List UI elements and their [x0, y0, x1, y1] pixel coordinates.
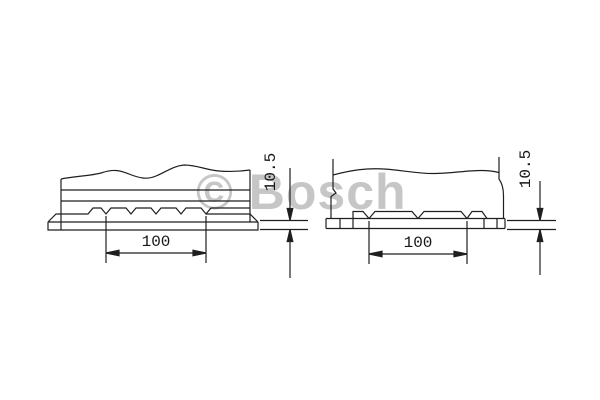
- technical-drawing-page: © Bosch 100 100 10.5 10.5: [0, 0, 600, 400]
- left-width-arrow-left: [106, 250, 119, 256]
- left-height-arrow-up: [287, 230, 293, 242]
- right-body-top-wave: [333, 169, 499, 175]
- right-width-arrow-right: [454, 251, 467, 257]
- left-body-top-wave: [61, 165, 250, 179]
- right-tooth-1: [353, 212, 369, 229]
- right-body-left-edge: [331, 159, 336, 219]
- left-foot-outline: [48, 222, 258, 230]
- right-view-height-dimension-label: 10.5: [518, 146, 534, 192]
- right-tooth-2: [369, 212, 418, 219]
- left-ledge-teeth: [48, 208, 250, 222]
- right-view-width-dimension-label: 100: [388, 235, 448, 251]
- right-height-arrow-down: [537, 209, 543, 221]
- left-view-width-dimension-label: 100: [126, 234, 186, 250]
- right-body-right-edge: [499, 157, 504, 219]
- right-width-arrow-left: [369, 251, 382, 257]
- right-tooth-4: [467, 212, 487, 219]
- left-width-arrow-right: [193, 250, 206, 256]
- right-height-arrow-up: [537, 230, 543, 242]
- drawing-svg: [0, 0, 600, 400]
- left-view-height-dimension-label: 10.5: [263, 149, 279, 195]
- left-height-arrow-down: [287, 209, 293, 221]
- right-tooth-3: [418, 212, 467, 219]
